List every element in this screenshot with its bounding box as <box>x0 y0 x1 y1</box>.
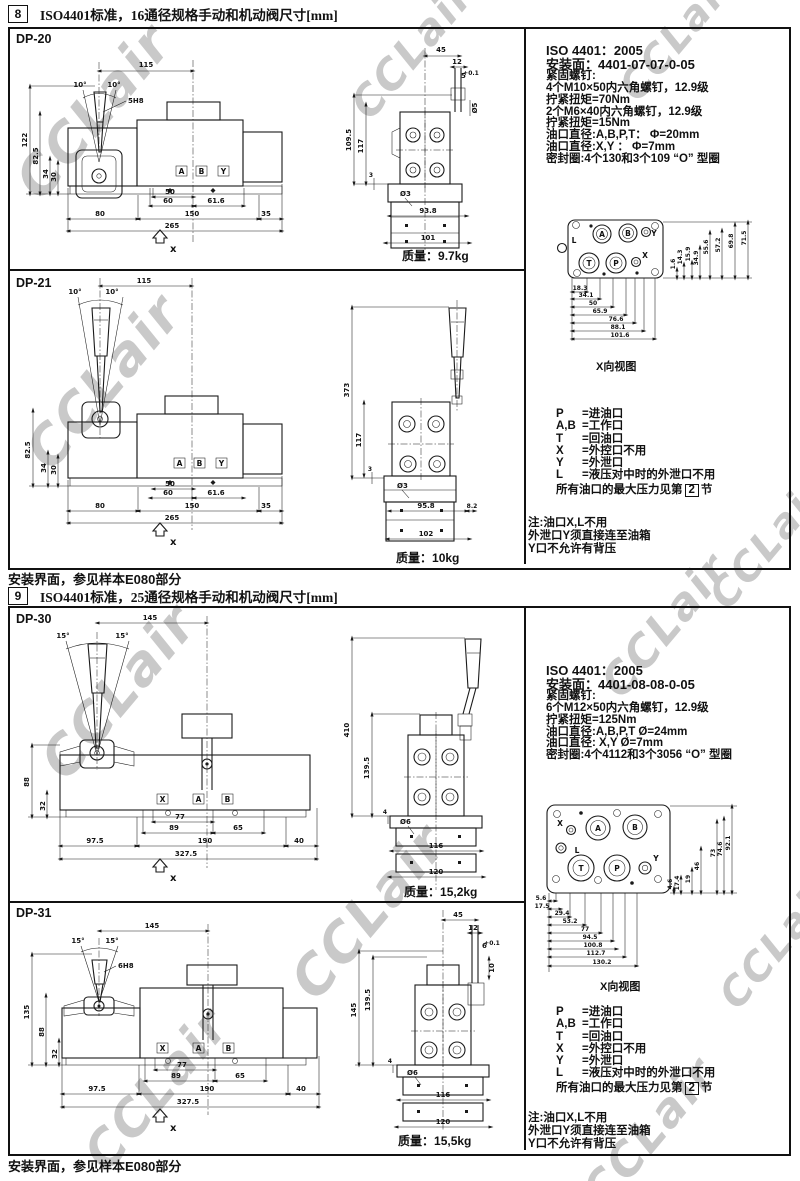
legend-row: A,B=工作口 <box>556 1018 715 1030</box>
dim-label: 100.8 <box>584 942 603 949</box>
model-label-dp21: DP-21 <box>16 276 51 290</box>
legend-row: T=回油口 <box>556 433 715 445</box>
sec9-mounting-face: X A B L T P Y 4.6 17.4 19 46 73 74.6 92.… <box>535 805 737 993</box>
legend-value: =液压对中时的外泄口不用 <box>582 469 715 481</box>
mass-label: 质量： <box>398 1134 434 1148</box>
x-direction-label: x <box>170 873 177 884</box>
dim-label: 80 <box>95 210 105 218</box>
legend-key: T <box>556 1031 582 1043</box>
dp20-front-view: 115 10° 10° 5H8 A B Y 122 82.5 34 30 50 <box>21 60 282 255</box>
dim-label: 3 <box>368 466 372 473</box>
dim-label: 82.5 <box>32 147 40 164</box>
port-b: B <box>632 823 638 832</box>
legend-row: L=液压对中时的外泄口不用 <box>556 469 715 481</box>
dp21-front-view: 115 10° 10° A B Y 82.5 34 30 50 60 61.6 <box>24 277 282 548</box>
port-l: L <box>575 846 580 855</box>
port-label-b: B <box>199 167 205 176</box>
port-label-y: Y <box>218 459 225 468</box>
mass-dp31: 质量：15,5kg <box>398 1132 471 1149</box>
section9-footer: 安装界面，参见样本E080部分 <box>8 1156 181 1175</box>
legend-row: X=外控口不用 <box>556 1043 715 1055</box>
dim-label: 145 <box>350 1003 358 1018</box>
dim-label: 60 <box>163 197 173 205</box>
dim-label: 327.5 <box>175 850 197 858</box>
dim-label: Ø5 <box>471 102 479 113</box>
dim-label: 50 <box>589 300 597 307</box>
legend-value: =外泄口 <box>582 457 623 469</box>
dim-label: 40 <box>296 1085 306 1093</box>
dim-label: 50 <box>165 480 175 488</box>
mass-dp20: 质量：9.7kg <box>402 247 469 264</box>
port-label-x: X <box>160 1044 166 1053</box>
dim-label: 32 <box>39 801 47 811</box>
hole-dim-label: Ø6 <box>400 818 411 826</box>
dim-label: 45 <box>436 46 446 54</box>
port-p: P <box>613 259 619 268</box>
dim-label: 97.5 <box>86 837 103 845</box>
note-block-sec9: 注:油口X,L不用 外泄口Y须直接连至油箱 Y口不允许有背压 <box>528 1112 651 1150</box>
view-caption: X向视图 <box>600 979 640 993</box>
mass-value: 9.7kg <box>438 249 469 263</box>
spec-line: 密封圈:4个4112和3个3056 “O” 型圈 <box>546 750 732 762</box>
dim-label: 46 <box>694 862 701 870</box>
section9-header: 9 ISO4401标准，25通径规格手动和机动阀尺寸[mm] <box>8 586 338 606</box>
dim-label: 12 <box>452 58 462 66</box>
dim-label: 109.5 <box>345 129 353 151</box>
dim-label: 30 <box>50 172 58 182</box>
port-p: P <box>614 864 620 873</box>
dim-label: 117 <box>355 433 363 448</box>
dim-label: 115 <box>137 277 152 285</box>
legend-key: A,B <box>556 420 582 432</box>
dp20-side-view: 45 12 5 +0.1 Ø5 109.5 117 3 Ø3 93.8 <box>345 46 479 250</box>
dim-label: 30 <box>50 465 58 475</box>
dp30-side-view: 410 139.5 116 120 4 Ø6 <box>343 638 484 890</box>
model-label-dp31: DP-31 <box>16 906 51 920</box>
spec-line: 拧紧扭矩=125Nm <box>546 715 732 727</box>
legend-value: =工作口 <box>582 1018 623 1030</box>
dim-label: 88 <box>23 777 31 787</box>
dim-label: 265 <box>165 514 180 522</box>
dim-label: 65 <box>233 824 243 832</box>
max-pressure-text: 所有油口的最大压力见第 <box>556 484 683 496</box>
section-ref-box: 2 <box>685 1082 699 1095</box>
dim-label: 32 <box>51 1049 59 1059</box>
port-label-a: A <box>196 795 202 804</box>
legend-row: L=液压对中时的外泄口不用 <box>556 1067 715 1079</box>
max-pressure-line: 所有油口的最大压力见第2节 <box>556 484 715 497</box>
port-label-a: A <box>196 1044 202 1053</box>
dim-label: 1.6 <box>670 259 677 270</box>
note-line: 注:油口X,L不用 <box>528 517 651 530</box>
port-l: L <box>572 236 577 245</box>
specs-block-sec8: ISO 4401：2005 安装面：4401-07-07-0-05 紧固螺钉: … <box>546 44 720 166</box>
dp31-front-view: 145 15° 15° 6H8 X A B 135 88 32 77 <box>23 922 319 1134</box>
dim-label: 10° <box>73 81 86 89</box>
dim-label: 101.6 <box>611 332 630 339</box>
dim-label: 18.3 <box>573 285 588 292</box>
dim-label: 145 <box>143 614 158 622</box>
note-line: Y口不允许有背压 <box>528 543 651 556</box>
dim-label: 34 <box>40 463 48 473</box>
section9-title: ISO4401标准，25通径规格手动和机动阀尺寸[mm] <box>40 586 338 606</box>
dim-label: 92.1 <box>725 836 732 851</box>
port-label-a: A <box>177 459 183 468</box>
dp21-side-view: 373 117 3 Ø3 95.8 8.2 102 <box>343 300 477 541</box>
datasheet-page: CCLair CCLair CCLair CCLair CCLair CCLai… <box>0 0 800 1181</box>
dim-label: 50 <box>165 188 175 196</box>
legend-value: =回油口 <box>582 433 623 445</box>
dim-label: 77 <box>581 926 589 933</box>
spec-line: ISO 4401：2005 <box>546 44 720 58</box>
port-label-b: B <box>197 459 203 468</box>
legend-key: L <box>556 469 582 481</box>
specs-block-sec9: ISO 4401：2005 安装面：4401-08-08-0-05 紧固螺钉: … <box>546 664 732 762</box>
legend-value: =液压对中时的外泄口不用 <box>582 1067 715 1079</box>
note-line: 注:油口X,L不用 <box>528 1112 651 1125</box>
legend-row: X=外控口不用 <box>556 445 715 457</box>
dim-label: 93.8 <box>419 207 436 215</box>
dim-label: 120 <box>429 868 444 876</box>
x-direction-label: x <box>170 1123 177 1134</box>
port-label-y: Y <box>220 167 227 176</box>
section9-number: 9 <box>8 587 28 605</box>
dim-label: 77 <box>177 1061 187 1069</box>
dim-label: 5H8 <box>128 97 144 105</box>
mass-value: 15,5kg <box>434 1134 471 1148</box>
legend-key: A,B <box>556 1018 582 1030</box>
dim-label: 265 <box>165 222 180 230</box>
dim-label: 112.7 <box>587 950 606 957</box>
dim-label: 145 <box>145 922 160 930</box>
dim-label: 69.8 <box>728 234 735 249</box>
dim-label: 3 <box>369 172 373 179</box>
spec-line: 油口直径:X,Y ： Φ=7mm <box>546 142 720 154</box>
tolerance-label: +0.1 <box>484 940 500 947</box>
dim-label: 65 <box>235 1072 245 1080</box>
note-block-sec8: 注:油口X,L不用 外泄口Y须直接连至油箱 Y口不允许有背压 <box>528 517 651 555</box>
port-a: A <box>595 824 601 833</box>
dim-label: 35 <box>261 502 271 510</box>
hole-dim-label: Ø6 <box>407 1069 418 1077</box>
legend-value: =进油口 <box>582 1006 623 1018</box>
dim-label: 82.5 <box>24 441 32 458</box>
dim-label: 73 <box>710 849 717 857</box>
dim-label: 5.6 <box>536 895 547 902</box>
legend-row: P=进油口 <box>556 408 715 420</box>
dim-label: 34.1 <box>579 292 594 299</box>
hole-dim-label: Ø3 <box>397 482 408 490</box>
dim-label: 45 <box>453 911 463 919</box>
max-pressure-line: 所有油口的最大压力见第2节 <box>556 1082 715 1095</box>
legend-row: T=回油口 <box>556 1031 715 1043</box>
legend-row: P=进油口 <box>556 1006 715 1018</box>
port-t: T <box>586 259 592 268</box>
dim-label: 101 <box>421 234 436 242</box>
dim-label: 117 <box>357 139 365 154</box>
dim-label: 35 <box>261 210 271 218</box>
dim-label: 94.5 <box>583 934 598 941</box>
dim-label: 17.4 <box>674 876 681 891</box>
dim-label: 6H8 <box>118 962 134 970</box>
legend-value: =外泄口 <box>582 1055 623 1067</box>
note-line: 外泄口Y须直接连至油箱 <box>528 530 651 543</box>
dim-label: 139.5 <box>363 757 371 779</box>
dim-label: 10° <box>105 288 118 296</box>
legend-key: X <box>556 1043 582 1055</box>
port-x: X <box>557 819 563 828</box>
spec-line: 密封圈:4个130和3个109 “O” 型圈 <box>546 154 720 166</box>
port-x: X <box>642 251 648 260</box>
dim-label: 10 <box>488 963 496 973</box>
mass-value: 10kg <box>432 551 459 565</box>
dim-label: 115 <box>139 61 154 69</box>
dp30-front-view: 145 15° 15° X A B 88 32 77 89 65 97. <box>23 614 317 884</box>
dim-label: 77 <box>175 813 185 821</box>
dim-label: 15° <box>115 632 128 640</box>
legend-value: =外控口不用 <box>582 445 646 457</box>
spec-line: 拧紧扭矩=70Nm <box>546 95 720 107</box>
dim-label: 34 <box>42 169 50 179</box>
dim-label: 57.2 <box>715 238 722 253</box>
dim-label: 95.8 <box>417 502 434 510</box>
legend-key: P <box>556 1006 582 1018</box>
legend-key: Y <box>556 1055 582 1067</box>
legend-value: =外控口不用 <box>582 1043 646 1055</box>
dim-label: 53.2 <box>563 918 578 925</box>
dim-label: 61.6 <box>207 197 224 205</box>
dim-label: 80 <box>95 502 105 510</box>
dim-label: 190 <box>200 1085 215 1093</box>
port-label-x: X <box>160 795 166 804</box>
note-line: Y口不允许有背压 <box>528 1138 651 1151</box>
dim-label: 89 <box>169 824 179 832</box>
dim-label: 410 <box>343 723 351 738</box>
sec8-mounting-face: A B T P Y X L 1.6 14.3 15.9 34.9 55.6 57… <box>558 220 753 373</box>
section8-title: ISO4401标准，16通径规格手动和机动阀尺寸[mm] <box>40 4 338 24</box>
tolerance-label: +0.1 <box>463 70 479 77</box>
dim-label: 102 <box>419 530 434 538</box>
dim-label: 76.6 <box>609 316 624 323</box>
section8-number: 8 <box>8 5 28 23</box>
dim-label: 40 <box>294 837 304 845</box>
dim-label: 116 <box>429 842 444 850</box>
legend-row: Y=外泄口 <box>556 1055 715 1067</box>
spec-line: 4个M10×50内六角螺钉，12.9级 <box>546 83 720 95</box>
legend-row: A,B=工作口 <box>556 420 715 432</box>
section8-header: 8 ISO4401标准，16通径规格手动和机动阀尺寸[mm] <box>8 4 338 24</box>
dim-label: 10° <box>107 81 120 89</box>
dim-label: 120 <box>436 1118 451 1126</box>
dp31-side-view: 45 12 6 +0.1 10 145 139.5 116 120 4 <box>350 910 500 1130</box>
mass-label: 质量： <box>402 249 438 263</box>
legend-key: X <box>556 445 582 457</box>
model-label-dp30: DP-30 <box>16 612 51 626</box>
port-b: B <box>625 229 631 238</box>
port-y: Y <box>650 229 657 238</box>
dim-label: 116 <box>436 1091 451 1099</box>
dim-label: 34.9 <box>693 251 700 266</box>
dim-label: 4 <box>388 1058 392 1065</box>
mass-label: 质量： <box>404 885 440 899</box>
legend-key: Y <box>556 457 582 469</box>
dim-label: 19 <box>685 875 692 883</box>
legend-value: =进油口 <box>582 408 623 420</box>
legend-key: P <box>556 408 582 420</box>
dim-label: 150 <box>185 502 200 510</box>
legend-key: L <box>556 1067 582 1079</box>
dim-label: 60 <box>163 489 173 497</box>
dim-label: 88 <box>38 1027 46 1037</box>
mass-label: 质量： <box>396 551 432 565</box>
port-a: A <box>599 230 605 239</box>
dim-label: 139.5 <box>364 989 372 1011</box>
x-direction-label: x <box>170 537 177 548</box>
mass-dp21: 质量：10kg <box>396 549 459 566</box>
port-t: T <box>578 864 584 873</box>
hole-dim-label: Ø3 <box>400 190 411 198</box>
dim-label: 130.2 <box>593 959 612 966</box>
legend-key: T <box>556 433 582 445</box>
max-pressure-text: 节 <box>701 484 713 496</box>
dim-label: 15° <box>56 632 69 640</box>
dim-label: 122 <box>21 133 29 148</box>
model-label-dp20: DP-20 <box>16 32 51 46</box>
dim-label: 327.5 <box>177 1098 199 1106</box>
dim-label: 373 <box>343 383 351 398</box>
max-pressure-text: 所有油口的最大压力见第 <box>556 1082 683 1094</box>
dim-label: 135 <box>23 1005 31 1020</box>
port-legend-sec9: P=进油口 A,B=工作口 T=回油口 X=外控口不用 Y=外泄口 L=液压对中… <box>556 1006 715 1095</box>
spec-line: 6个M12×50内六角螺钉，12.9级 <box>546 703 732 715</box>
dim-label: 4.6 <box>667 879 674 890</box>
mass-value: 15,2kg <box>440 885 477 899</box>
dim-label: 88.1 <box>611 324 626 331</box>
dim-label: 17.5 <box>535 903 550 910</box>
legend-value: =回油口 <box>582 1031 623 1043</box>
x-direction-label: x <box>170 244 177 255</box>
legend-value: =工作口 <box>582 420 623 432</box>
max-pressure-text: 节 <box>701 1082 713 1094</box>
dim-label: 15.9 <box>685 247 692 262</box>
dim-label: 12 <box>468 924 478 932</box>
dim-label: 61.6 <box>207 489 224 497</box>
port-label-a: A <box>179 167 185 176</box>
legend-row: Y=外泄口 <box>556 457 715 469</box>
note-line: 外泄口Y须直接连至油箱 <box>528 1125 651 1138</box>
spec-line: ISO 4401：2005 <box>546 664 732 678</box>
port-y: Y <box>652 854 659 863</box>
dim-label: 97.5 <box>88 1085 105 1093</box>
dim-label: 190 <box>198 837 213 845</box>
dim-label: 15° <box>105 937 118 945</box>
view-caption: X向视图 <box>596 359 636 373</box>
dim-label: 150 <box>185 210 200 218</box>
dim-label: 74.6 <box>717 842 724 857</box>
dim-label: 14.3 <box>677 250 684 265</box>
section-ref-box: 2 <box>685 484 699 497</box>
dim-label: 15° <box>71 937 84 945</box>
port-label-b: B <box>226 1044 232 1053</box>
dim-label: 4 <box>383 809 387 816</box>
mass-dp30: 质量：15,2kg <box>404 883 477 900</box>
dim-label: 10° <box>68 288 81 296</box>
dim-label: 71.5 <box>741 231 748 246</box>
dim-label: 29.4 <box>555 910 570 917</box>
dim-label: 55.6 <box>703 240 710 255</box>
dim-label: 65.9 <box>593 308 608 315</box>
port-legend-sec8: P=进油口 A,B=工作口 T=回油口 X=外控口不用 Y=外泄口 L=液压对中… <box>556 408 715 497</box>
dim-label: 8.2 <box>467 503 478 510</box>
dim-label: 89 <box>171 1072 181 1080</box>
port-label-b: B <box>225 795 231 804</box>
